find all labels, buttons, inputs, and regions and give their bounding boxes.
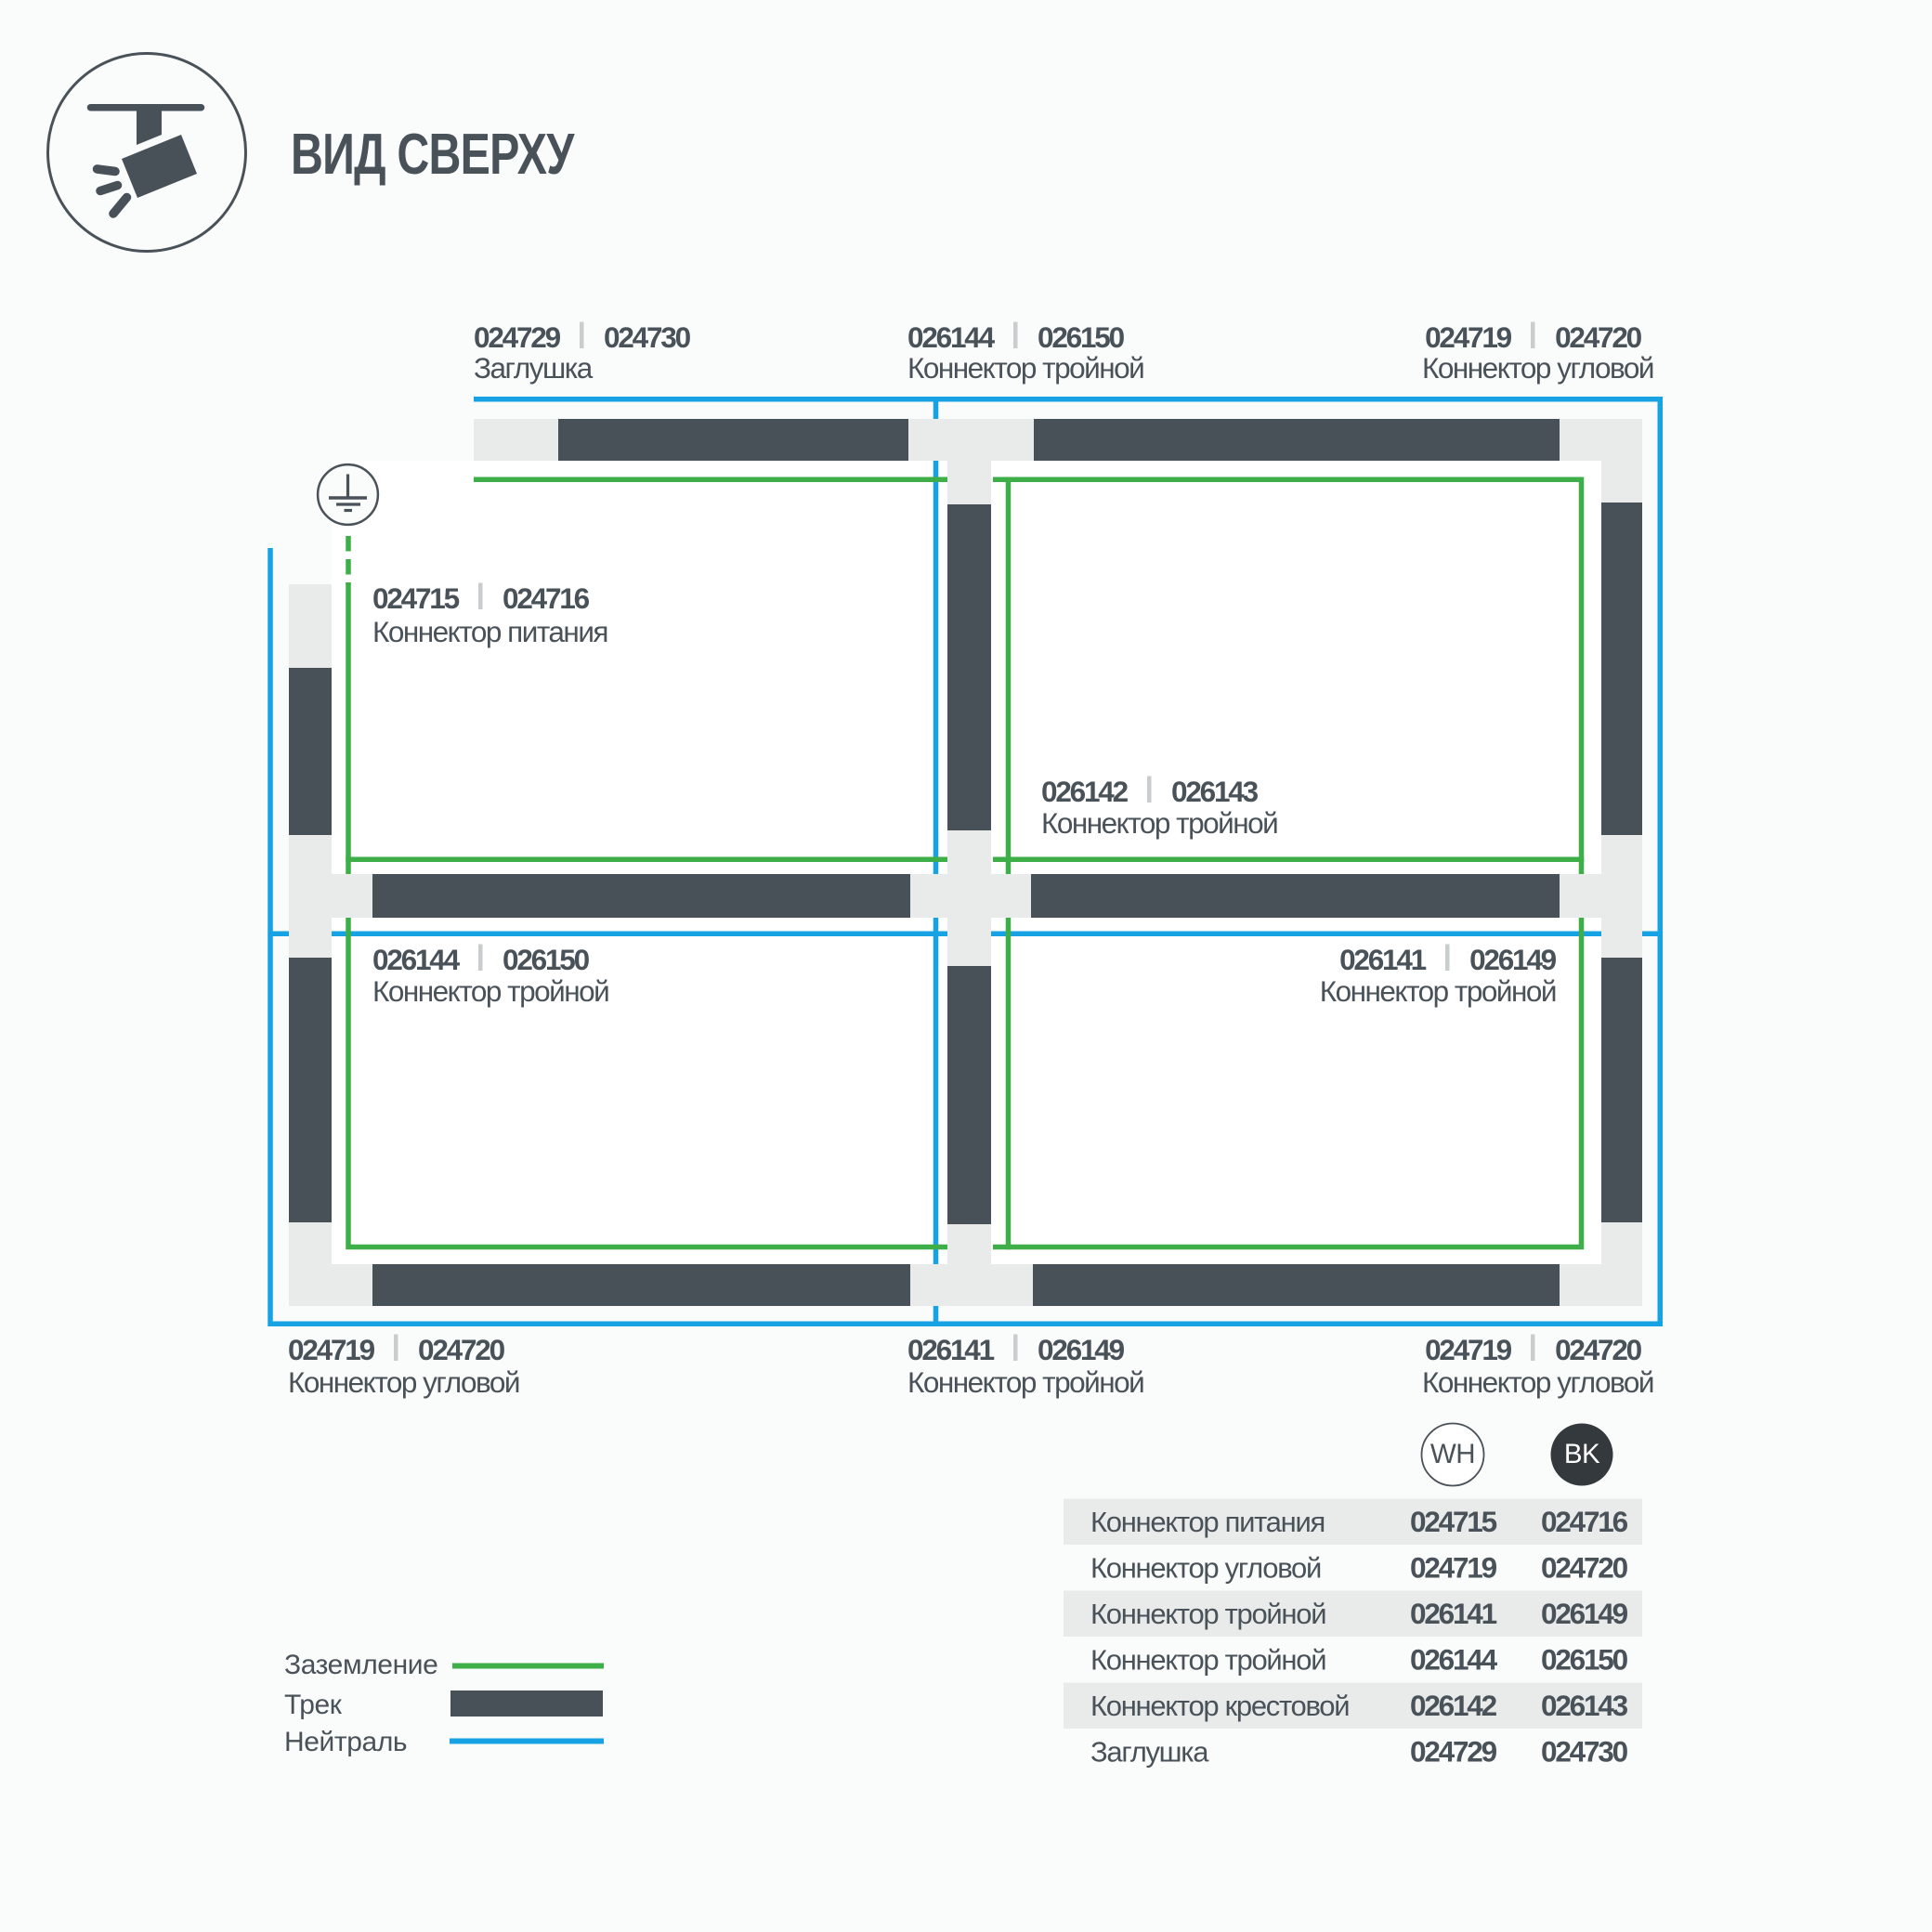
svg-text:Коннектор тройной: Коннектор тройной	[907, 1365, 1143, 1399]
svg-text:Коннектор угловой: Коннектор угловой	[1422, 1365, 1653, 1399]
svg-text:026150: 026150	[1038, 320, 1125, 354]
svg-text:Коннектор питания: Коннектор питания	[1090, 1506, 1325, 1538]
svg-text:026142: 026142	[1041, 775, 1129, 808]
svg-text:Коннектор угловой: Коннектор угловой	[1422, 351, 1653, 385]
svg-text:024715: 024715	[1410, 1505, 1497, 1538]
svg-text:Трек: Трек	[284, 1690, 343, 1720]
svg-text:024716: 024716	[503, 581, 590, 615]
svg-text:Коннектор питания: Коннектор питания	[372, 615, 607, 648]
svg-text:024719: 024719	[1410, 1551, 1497, 1585]
svg-text:026142: 026142	[1410, 1689, 1497, 1722]
svg-text:024730: 024730	[604, 320, 691, 354]
svg-text:024719: 024719	[1425, 1333, 1512, 1366]
svg-text:026150: 026150	[1541, 1643, 1628, 1677]
svg-text:026149: 026149	[1469, 943, 1557, 976]
svg-text:Коннектор тройной: Коннектор тройной	[1320, 974, 1556, 1008]
svg-text:Коннектор тройной: Коннектор тройной	[1041, 806, 1277, 840]
svg-text:Заглушка: Заглушка	[474, 351, 594, 385]
svg-text:Коннектор крестовой: Коннектор крестовой	[1090, 1690, 1349, 1722]
svg-text:024720: 024720	[1555, 320, 1642, 354]
svg-text:026150: 026150	[503, 943, 590, 976]
svg-text:Коннектор тройной: Коннектор тройной	[1090, 1644, 1325, 1677]
svg-text:026141: 026141	[1410, 1597, 1497, 1630]
svg-text:026143: 026143	[1541, 1689, 1628, 1722]
svg-text:Нейтраль: Нейтраль	[284, 1727, 407, 1757]
svg-text:Коннектор тройной: Коннектор тройной	[1090, 1598, 1325, 1630]
svg-text:026144: 026144	[1410, 1643, 1498, 1677]
svg-text:WH: WH	[1430, 1439, 1475, 1469]
svg-text:024715: 024715	[372, 581, 460, 615]
svg-text:024729: 024729	[474, 320, 561, 354]
svg-text:026143: 026143	[1171, 775, 1259, 808]
svg-text:Коннектор угловой: Коннектор угловой	[1090, 1552, 1321, 1585]
svg-text:Коннектор тройной: Коннектор тройной	[907, 351, 1143, 385]
svg-text:024719: 024719	[288, 1333, 375, 1366]
svg-text:024716: 024716	[1541, 1505, 1628, 1538]
svg-text:024719: 024719	[1425, 320, 1512, 354]
svg-text:026141: 026141	[907, 1333, 995, 1366]
svg-text:026149: 026149	[1541, 1597, 1628, 1630]
svg-text:024720: 024720	[418, 1333, 505, 1366]
svg-text:026149: 026149	[1038, 1333, 1125, 1366]
svg-text:024720: 024720	[1555, 1333, 1642, 1366]
svg-text:BK: BK	[1564, 1439, 1600, 1469]
svg-text:Коннектор тройной: Коннектор тройной	[372, 974, 608, 1008]
svg-text:024730: 024730	[1541, 1735, 1628, 1769]
svg-text:026141: 026141	[1339, 943, 1427, 976]
svg-text:024729: 024729	[1410, 1735, 1497, 1769]
svg-text:Коннектор угловой: Коннектор угловой	[288, 1365, 519, 1399]
svg-text:024720: 024720	[1541, 1551, 1628, 1585]
svg-text:Заглушка: Заглушка	[1090, 1736, 1209, 1769]
svg-text:ВИД СВЕРХУ: ВИД СВЕРХУ	[291, 122, 576, 186]
svg-text:Заземление: Заземление	[284, 1650, 437, 1680]
svg-text:026144: 026144	[372, 943, 461, 976]
svg-text:026144: 026144	[907, 320, 996, 354]
